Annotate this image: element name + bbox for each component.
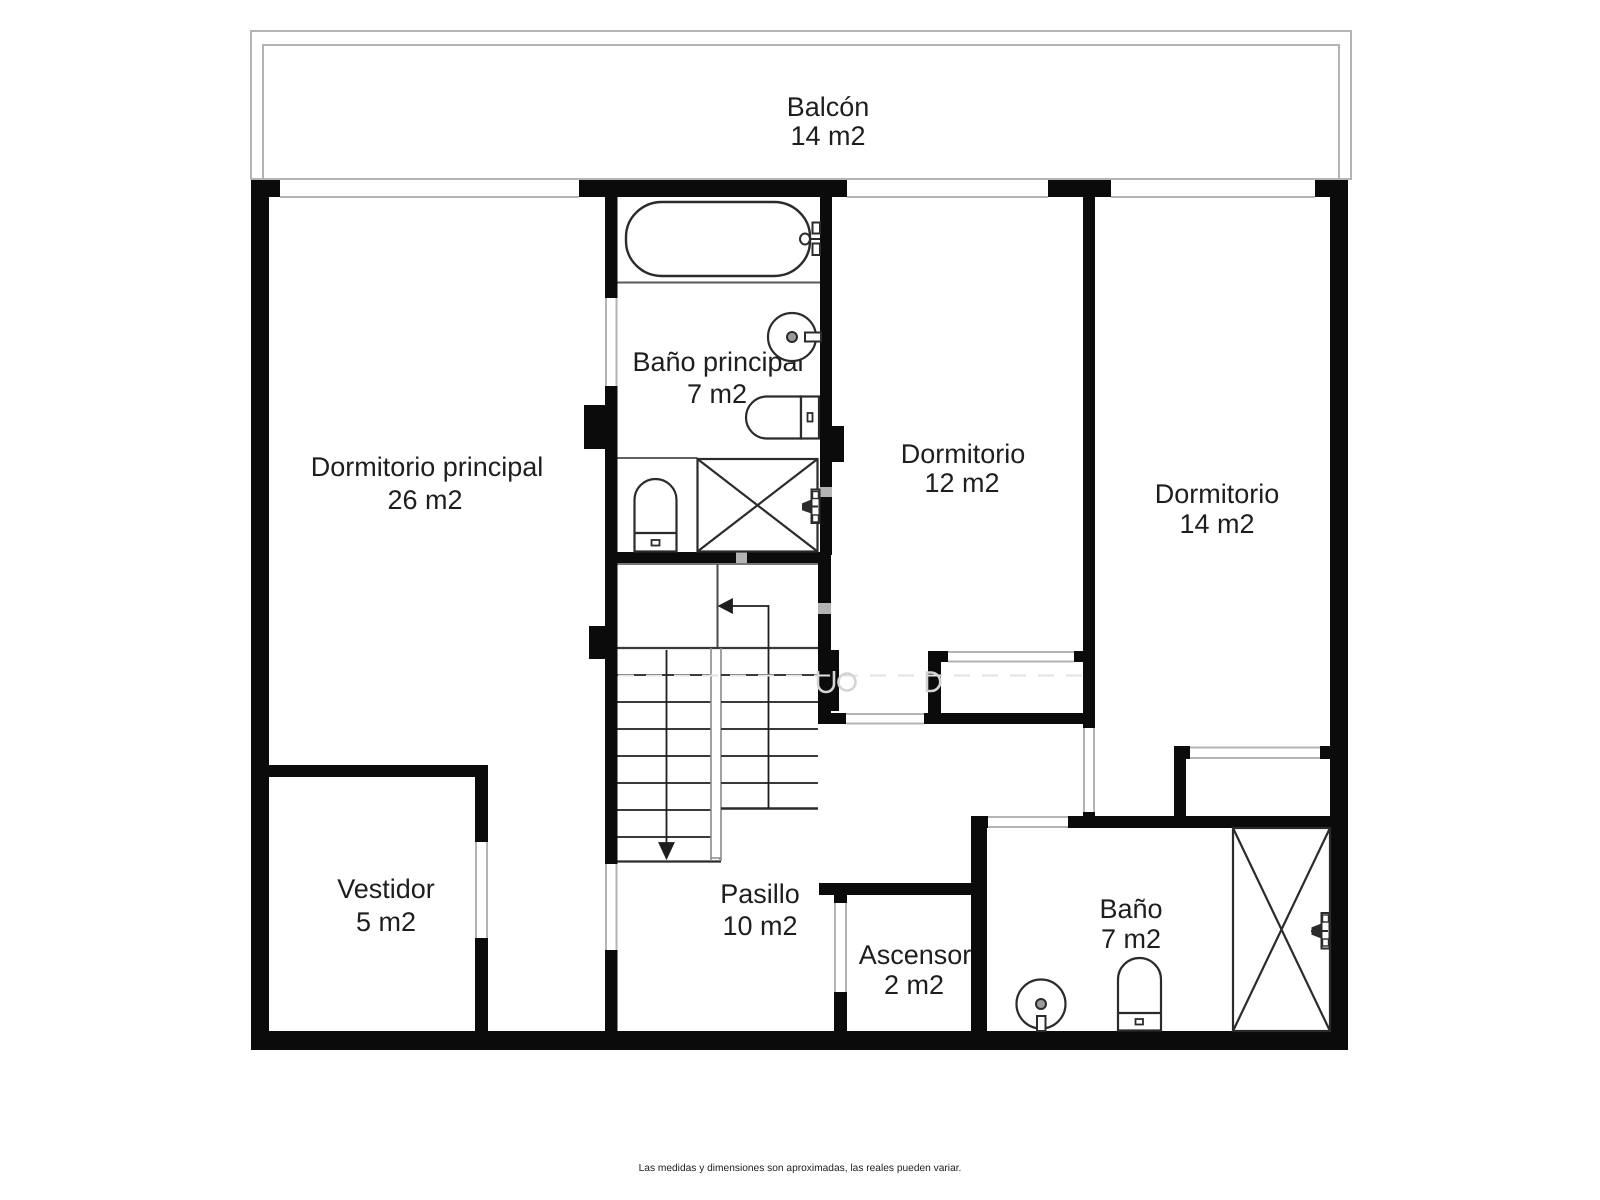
svg-text:5 m2: 5 m2 <box>356 907 416 937</box>
svg-text:14 m2: 14 m2 <box>1179 509 1254 539</box>
svg-text:12 m2: 12 m2 <box>924 468 999 498</box>
svg-text:2 m2: 2 m2 <box>884 970 944 1000</box>
svg-text:Baño: Baño <box>1099 894 1162 924</box>
svg-text:7 m2: 7 m2 <box>1101 924 1161 954</box>
svg-text:10 m2: 10 m2 <box>722 911 797 941</box>
svg-text:14 m2: 14 m2 <box>790 121 865 151</box>
svg-text:Balcón: Balcón <box>787 92 870 122</box>
svg-text:26 m2: 26 m2 <box>387 485 462 515</box>
svg-text:7 m2: 7 m2 <box>687 379 747 409</box>
svg-text:Dormitorio: Dormitorio <box>1155 479 1280 509</box>
svg-text:Dormitorio principal: Dormitorio principal <box>311 452 544 482</box>
svg-text:Pasillo: Pasillo <box>720 879 800 909</box>
svg-text:Ascensor: Ascensor <box>859 940 972 970</box>
svg-text:Dormitorio: Dormitorio <box>901 439 1026 469</box>
svg-text:Las medidas y dimensiones son: Las medidas y dimensiones son aproximada… <box>639 1163 962 1174</box>
svg-text:Vestidor: Vestidor <box>337 874 435 904</box>
